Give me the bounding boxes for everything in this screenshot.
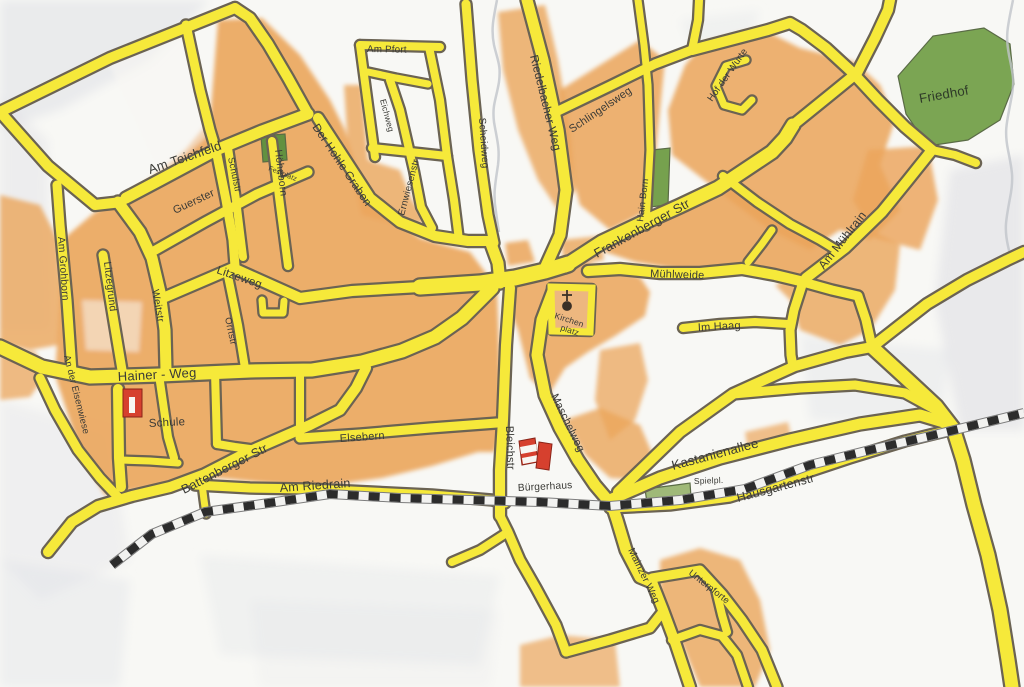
svg-text:Bleichstr: Bleichstr (503, 426, 517, 471)
svg-text:Im Haag: Im Haag (698, 320, 742, 334)
svg-text:Schule: Schule (149, 416, 186, 430)
svg-text:Spielpl.: Spielpl. (694, 475, 724, 486)
svg-text:Mühlweide: Mühlweide (650, 268, 705, 282)
svg-text:Am Pfort: Am Pfort (367, 44, 407, 56)
